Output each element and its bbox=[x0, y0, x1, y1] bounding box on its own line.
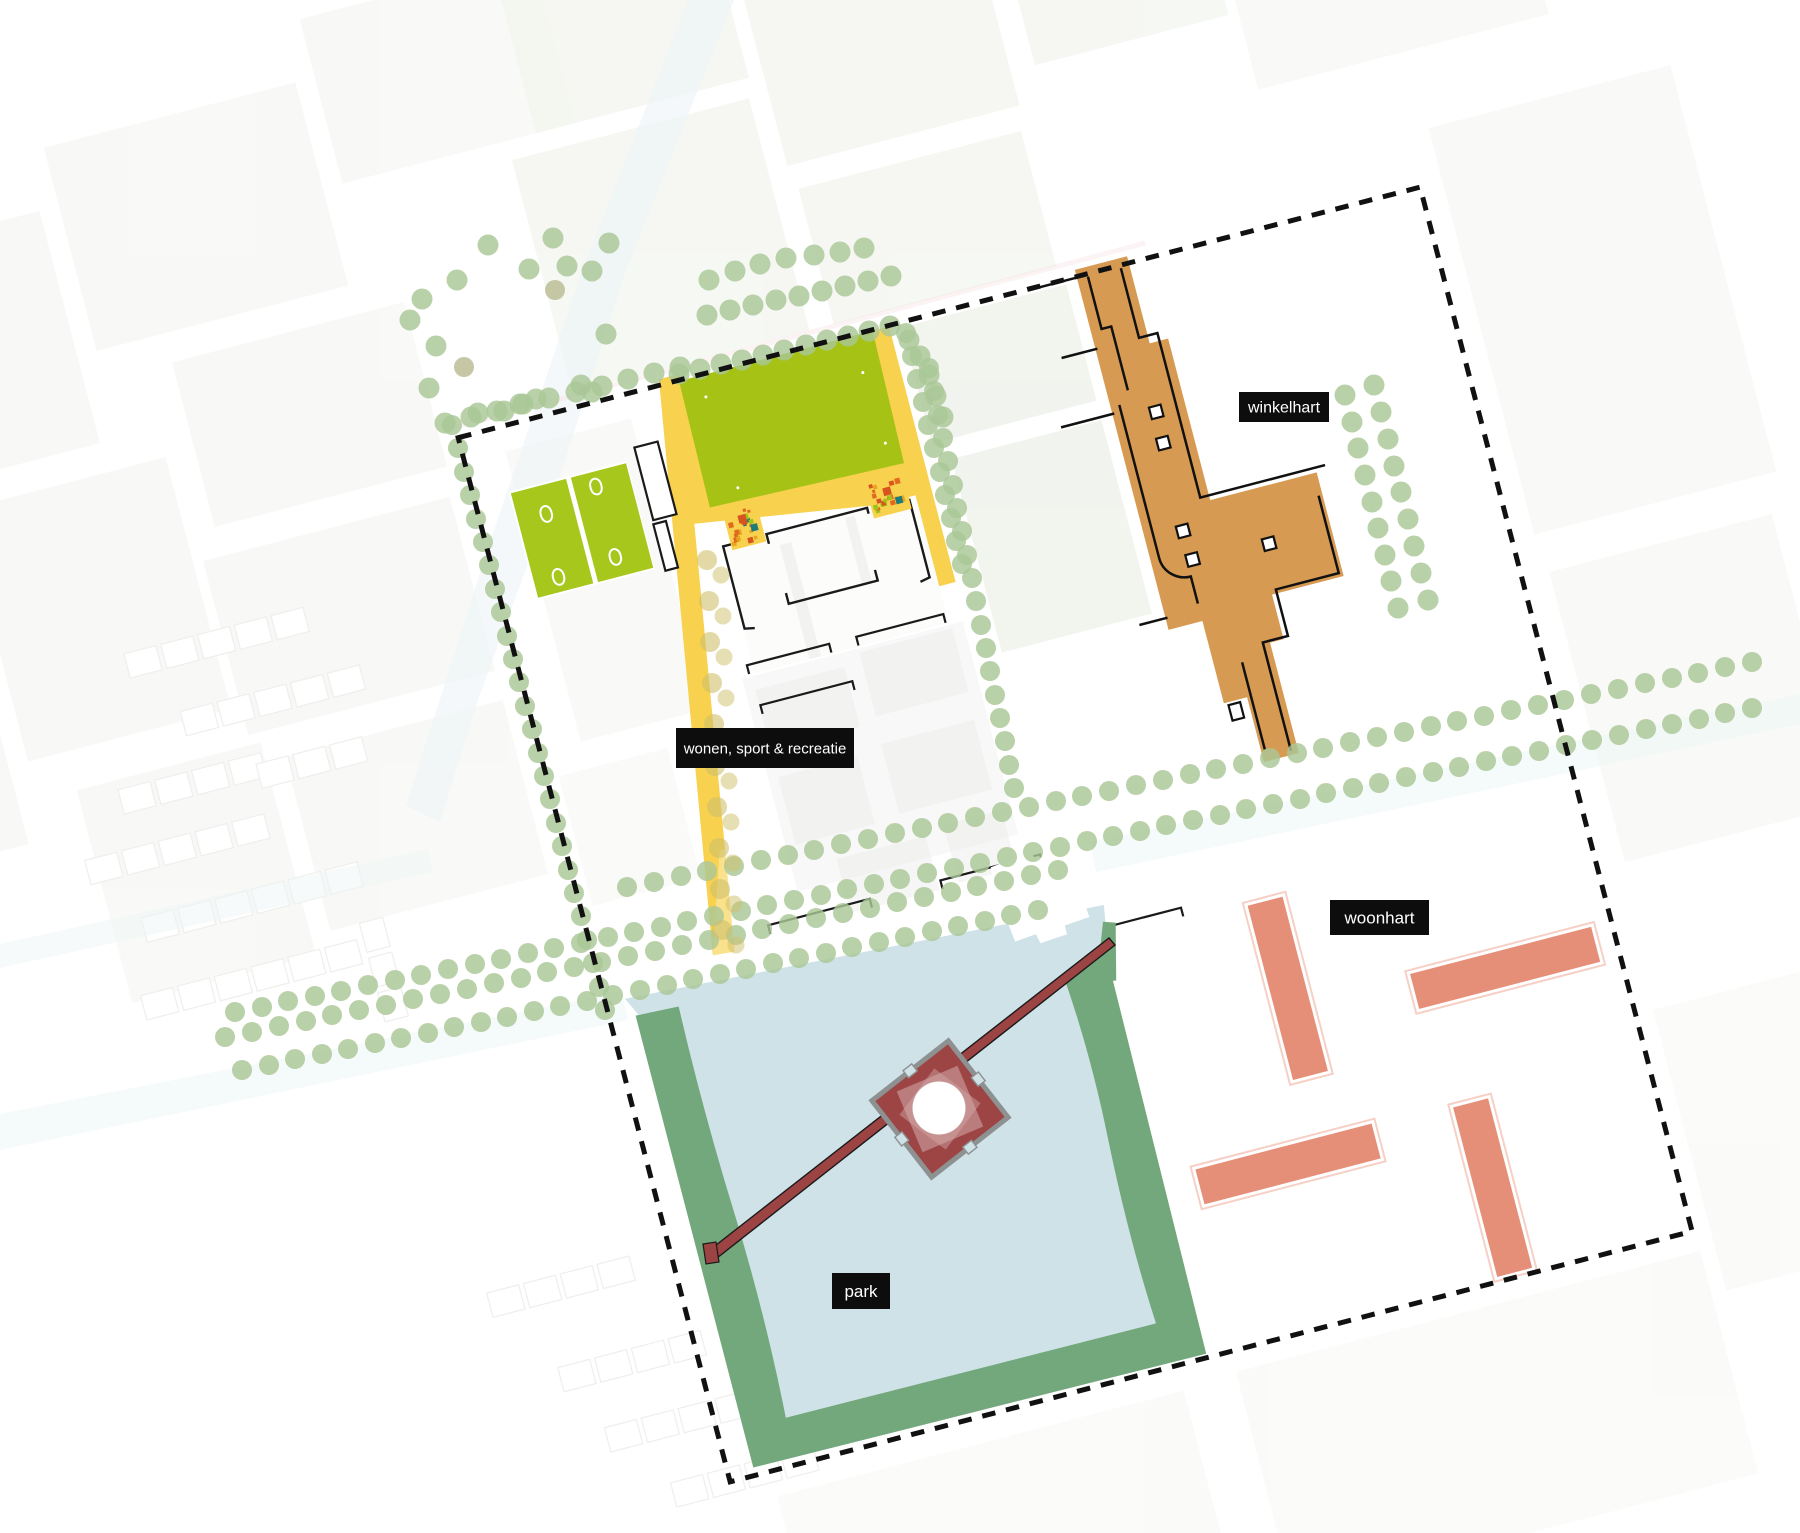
svg-text:woonhart: woonhart bbox=[1344, 908, 1415, 927]
svg-text:wonen, sport & recreatie: wonen, sport & recreatie bbox=[683, 740, 847, 757]
svg-text:park: park bbox=[844, 1282, 878, 1301]
svg-text:winkelhart: winkelhart bbox=[1247, 400, 1321, 417]
